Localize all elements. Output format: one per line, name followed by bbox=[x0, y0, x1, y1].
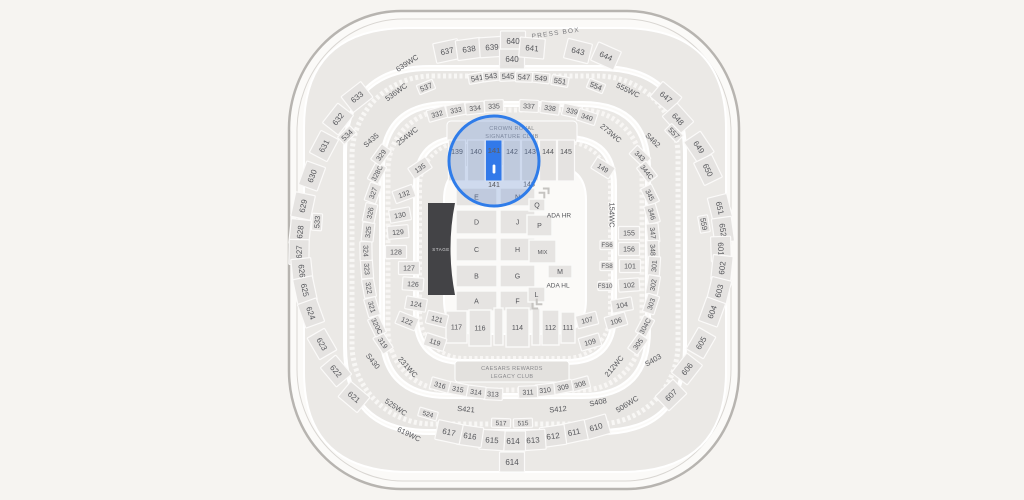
section-label: 335 bbox=[488, 103, 500, 110]
section-155[interactable]: 155 bbox=[619, 227, 640, 240]
section-label: 602 bbox=[717, 260, 727, 275]
section-label: 325 bbox=[365, 226, 373, 238]
section-label: S421 bbox=[457, 404, 475, 414]
section-324[interactable]: 324 bbox=[360, 241, 372, 260]
floor-section-d[interactable]: D bbox=[456, 210, 497, 234]
section-124[interactable]: 124 bbox=[405, 296, 428, 312]
section-label: 601 bbox=[716, 242, 725, 256]
section-label: 311 bbox=[522, 389, 534, 396]
section-label: 547 bbox=[518, 72, 531, 81]
floor-section-m[interactable]: M bbox=[548, 265, 572, 278]
seat-map: PRESS BOX CROWN ROYAL SIGNATURE CLUB CAE… bbox=[0, 0, 1024, 500]
section-543[interactable]: 543 bbox=[482, 70, 500, 82]
section-fs6[interactable]: FS6 bbox=[600, 241, 614, 250]
section-label: 102 bbox=[623, 282, 635, 290]
section-314[interactable]: 314 bbox=[466, 385, 486, 399]
section-label: 549 bbox=[534, 73, 547, 83]
section-label: ADA HL bbox=[546, 282, 570, 289]
floor-section-label: MIX bbox=[538, 250, 548, 256]
section-label: ADA HR bbox=[547, 212, 572, 219]
floor-section-label: 116 bbox=[474, 325, 485, 332]
section-label: 127 bbox=[403, 266, 415, 273]
floor-aisle bbox=[494, 308, 503, 345]
section-s412[interactable]: S412 bbox=[549, 404, 567, 414]
section-label: 129 bbox=[392, 229, 404, 237]
section-101[interactable]: 101 bbox=[620, 260, 641, 273]
floor-section-112[interactable]: 112 bbox=[542, 310, 559, 345]
section-ada-hr[interactable]: ADA HR bbox=[547, 212, 572, 219]
section-label: FS10 bbox=[598, 283, 613, 290]
section-549[interactable]: 549 bbox=[532, 72, 550, 84]
floor-section-label: Q bbox=[534, 202, 540, 209]
floor-section-label: P bbox=[537, 223, 542, 230]
section-156[interactable]: 156 bbox=[619, 243, 640, 256]
section-label: 533 bbox=[312, 215, 322, 228]
floor-section-label: B bbox=[474, 273, 479, 280]
section-104[interactable]: 104 bbox=[611, 297, 634, 313]
section-label: 155 bbox=[623, 231, 635, 238]
section-322[interactable]: 322 bbox=[361, 278, 376, 299]
section-label: 614 bbox=[506, 437, 520, 446]
section-334[interactable]: 334 bbox=[465, 101, 485, 115]
legacy-club-line2: LEGACY CLUB bbox=[491, 374, 534, 380]
floor-section-label: C bbox=[474, 247, 479, 254]
section-129[interactable]: 129 bbox=[387, 225, 409, 240]
section-label: 614 bbox=[505, 458, 519, 467]
section-label: 626 bbox=[296, 264, 306, 279]
section-fs10[interactable]: FS10 bbox=[598, 282, 613, 291]
section-614[interactable]: 614 bbox=[500, 452, 525, 472]
floor-section-label: D bbox=[474, 219, 479, 226]
section-559[interactable]: 559 bbox=[698, 215, 711, 233]
zoom-circle-overlay bbox=[449, 116, 539, 206]
floor-section-label: F bbox=[515, 298, 519, 305]
section-551[interactable]: 551 bbox=[551, 75, 569, 88]
floor-section-114[interactable]: 114 bbox=[506, 308, 529, 347]
section-102[interactable]: 102 bbox=[618, 278, 640, 292]
section-label: 101 bbox=[624, 264, 636, 271]
section-547[interactable]: 547 bbox=[515, 72, 532, 83]
section-label: 615 bbox=[485, 435, 499, 445]
floor-section-label: G bbox=[515, 273, 520, 280]
section-126[interactable]: 126 bbox=[402, 277, 424, 291]
section-323[interactable]: 323 bbox=[360, 259, 373, 279]
section-154wc[interactable]: 154WC bbox=[607, 202, 616, 228]
section-label: 616 bbox=[463, 431, 478, 442]
section-label: 347 bbox=[648, 227, 656, 239]
section-label: 543 bbox=[484, 71, 498, 81]
section-label: 323 bbox=[362, 263, 370, 275]
section-338[interactable]: 338 bbox=[540, 101, 560, 116]
floor-section-label: 112 bbox=[545, 325, 556, 332]
section-label: FS6 bbox=[601, 242, 613, 249]
section-label: 545 bbox=[502, 71, 515, 81]
floor-section-b[interactable]: B bbox=[456, 265, 497, 287]
section-301[interactable]: 301 bbox=[647, 256, 660, 276]
section-311[interactable]: 311 bbox=[518, 386, 537, 399]
floor-section-label: J bbox=[516, 219, 520, 226]
section-label: 334 bbox=[469, 105, 481, 113]
floor-section-label: H bbox=[515, 247, 520, 254]
section-label: 156 bbox=[623, 247, 635, 254]
section-533[interactable]: 533 bbox=[311, 213, 322, 231]
floor-section-q[interactable]: Q bbox=[529, 199, 545, 211]
section-label: 517 bbox=[495, 420, 506, 427]
section-128[interactable]: 128 bbox=[386, 246, 407, 259]
section-127[interactable]: 127 bbox=[399, 262, 420, 275]
section-label: S412 bbox=[549, 404, 567, 414]
floor-section-111[interactable]: 111 bbox=[561, 312, 575, 343]
section-label: 348 bbox=[648, 244, 655, 256]
section-641[interactable]: 641 bbox=[519, 37, 546, 59]
floor-section-116[interactable]: 116 bbox=[469, 310, 491, 346]
section-515[interactable]: 515 bbox=[513, 418, 532, 428]
stage-label: STAGE bbox=[432, 247, 449, 252]
legacy-club-line1: CAESARS REWARDS bbox=[481, 366, 543, 372]
section-label: 638 bbox=[462, 44, 477, 55]
section-ada-hl[interactable]: ADA HL bbox=[546, 282, 570, 289]
legacy-club-banner: CAESARS REWARDS LEGACY CLUB bbox=[455, 361, 569, 382]
floor-section-label: A bbox=[474, 298, 479, 305]
floor-section-a[interactable]: A bbox=[456, 291, 497, 311]
section-337[interactable]: 337 bbox=[519, 100, 539, 113]
section-label: 641 bbox=[525, 43, 540, 53]
section-label: 154WC bbox=[607, 202, 616, 228]
section-325[interactable]: 325 bbox=[361, 222, 375, 242]
section-617[interactable]: 617 bbox=[435, 420, 464, 445]
section-label: 145 bbox=[560, 149, 572, 156]
section-label: 324 bbox=[361, 245, 368, 257]
selected-section-bottom-label: 141 bbox=[488, 182, 500, 189]
section-label: FS8 bbox=[601, 263, 613, 270]
floor-section-c[interactable]: C bbox=[456, 238, 497, 261]
section-label: 613 bbox=[526, 435, 540, 445]
section-fs8[interactable]: FS8 bbox=[600, 262, 614, 271]
section-517[interactable]: 517 bbox=[491, 418, 510, 428]
section-label: 612 bbox=[546, 431, 561, 442]
section-label: 640 bbox=[505, 55, 519, 64]
section-label: 639 bbox=[485, 42, 499, 52]
section-label: 126 bbox=[407, 281, 419, 289]
floor-aisle bbox=[532, 308, 540, 345]
section-144[interactable]: 144 bbox=[540, 140, 557, 181]
section-label: 628 bbox=[295, 224, 305, 239]
floor-section-label: 114 bbox=[512, 325, 523, 332]
section-label: 313 bbox=[487, 391, 499, 399]
section-s421[interactable]: S421 bbox=[457, 404, 475, 414]
section-629[interactable]: 629 bbox=[291, 192, 316, 221]
floor-section-label: 117 bbox=[451, 324, 462, 331]
section-302[interactable]: 302 bbox=[645, 275, 660, 296]
section-335[interactable]: 335 bbox=[484, 100, 503, 113]
floor-section-mix[interactable]: MIX bbox=[529, 240, 556, 263]
floor-section-label: M bbox=[557, 269, 563, 276]
section-label: 640 bbox=[506, 37, 520, 46]
seat-pin-icon bbox=[493, 165, 496, 174]
section-130[interactable]: 130 bbox=[389, 207, 412, 223]
floor-section-g[interactable]: G bbox=[500, 265, 535, 287]
section-label: 310 bbox=[539, 387, 551, 395]
section-label: 128 bbox=[390, 250, 402, 257]
section-label: 314 bbox=[470, 389, 483, 397]
section-label: 515 bbox=[517, 420, 528, 427]
section-label: 652 bbox=[717, 223, 728, 238]
section-145[interactable]: 145 bbox=[558, 140, 575, 181]
section-label: 627 bbox=[295, 245, 304, 259]
section-label: 337 bbox=[523, 103, 535, 111]
floor-section-label: L bbox=[535, 292, 539, 299]
section-545[interactable]: 545 bbox=[499, 71, 517, 82]
section-label: 301 bbox=[651, 260, 659, 272]
floor-section-label: 111 bbox=[563, 325, 574, 332]
section-label: 144 bbox=[542, 149, 554, 156]
